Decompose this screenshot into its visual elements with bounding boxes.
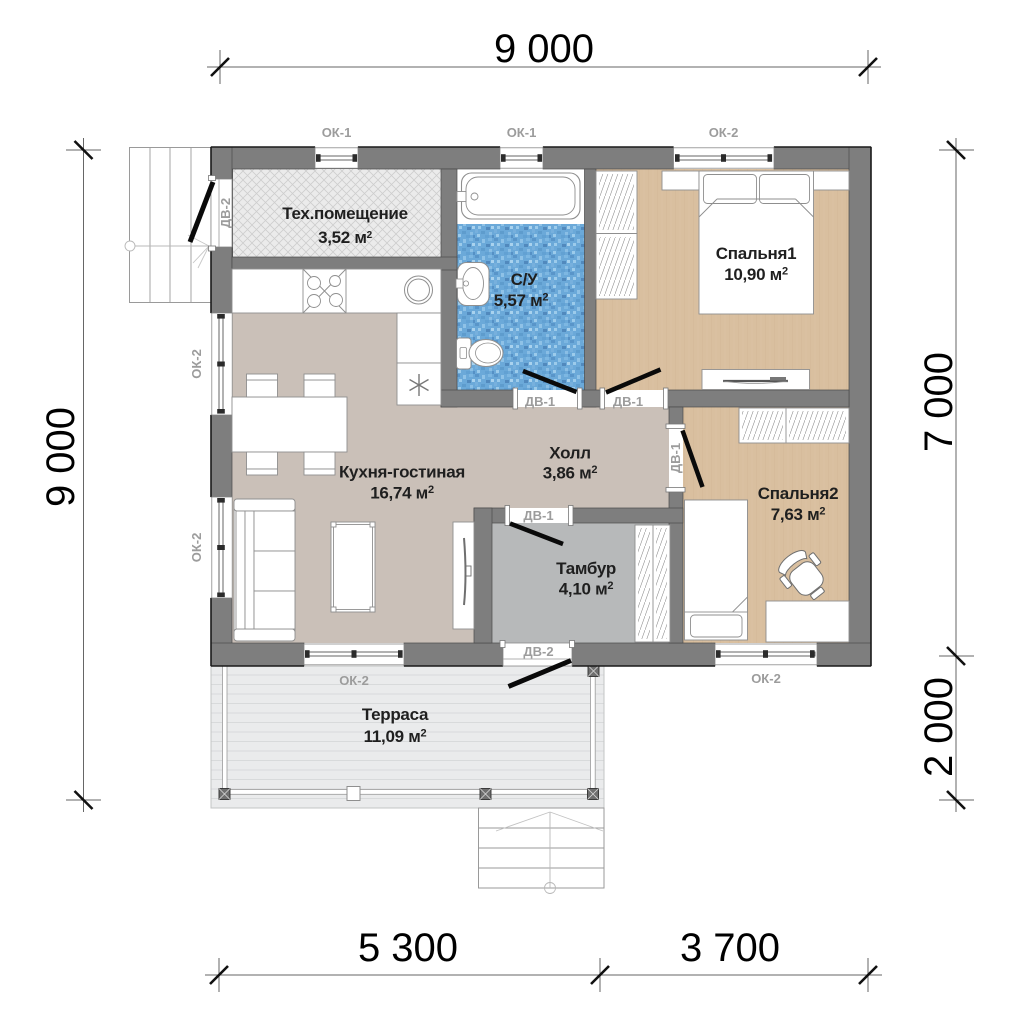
svg-text:Тамбур: Тамбур (556, 559, 616, 578)
svg-text:10,90 м2: 10,90 м2 (724, 265, 788, 284)
svg-text:ОК-2: ОК-2 (339, 673, 369, 688)
svg-text:7,63 м2: 7,63 м2 (771, 505, 826, 524)
svg-text:16,74 м2: 16,74 м2 (370, 484, 434, 503)
svg-text:Спальня2: Спальня2 (758, 484, 839, 503)
svg-text:ОК-2: ОК-2 (751, 671, 781, 686)
svg-text:ОК-2: ОК-2 (189, 349, 204, 379)
svg-text:Спальня1: Спальня1 (716, 244, 797, 263)
svg-text:С/У: С/У (511, 270, 538, 289)
svg-text:ОК-1: ОК-1 (507, 125, 537, 140)
svg-text:4,10 м2: 4,10 м2 (559, 580, 614, 599)
svg-text:2 000: 2 000 (917, 677, 961, 777)
svg-text:ОК-1: ОК-1 (322, 125, 352, 140)
svg-text:ДВ-1: ДВ-1 (525, 394, 555, 409)
svg-text:3 700: 3 700 (680, 926, 780, 970)
svg-text:ОК-2: ОК-2 (709, 125, 739, 140)
svg-text:ОК-2: ОК-2 (189, 533, 204, 563)
svg-text:5 300: 5 300 (358, 926, 458, 970)
svg-text:Кухня-гостиная: Кухня-гостиная (339, 463, 465, 482)
svg-text:9 000: 9 000 (494, 27, 594, 71)
svg-text:5,57 м2: 5,57 м2 (494, 291, 549, 310)
svg-text:Холл: Холл (549, 444, 590, 463)
svg-text:9 000: 9 000 (39, 407, 83, 507)
svg-text:ДВ-1: ДВ-1 (613, 394, 643, 409)
svg-text:3,86 м2: 3,86 м2 (543, 464, 598, 483)
svg-text:ДВ-1: ДВ-1 (523, 508, 553, 523)
svg-text:7 000: 7 000 (917, 352, 961, 452)
svg-text:Терраса: Терраса (362, 705, 429, 724)
svg-text:ДВ-2: ДВ-2 (523, 644, 553, 659)
svg-text:ДВ-2: ДВ-2 (218, 198, 233, 228)
svg-text:ДВ-1: ДВ-1 (668, 443, 683, 473)
svg-text:Тех.помещение: Тех.помещение (282, 204, 407, 223)
svg-text:11,09 м2: 11,09 м2 (364, 727, 427, 746)
svg-text:3,52 м2: 3,52 м2 (318, 228, 373, 247)
